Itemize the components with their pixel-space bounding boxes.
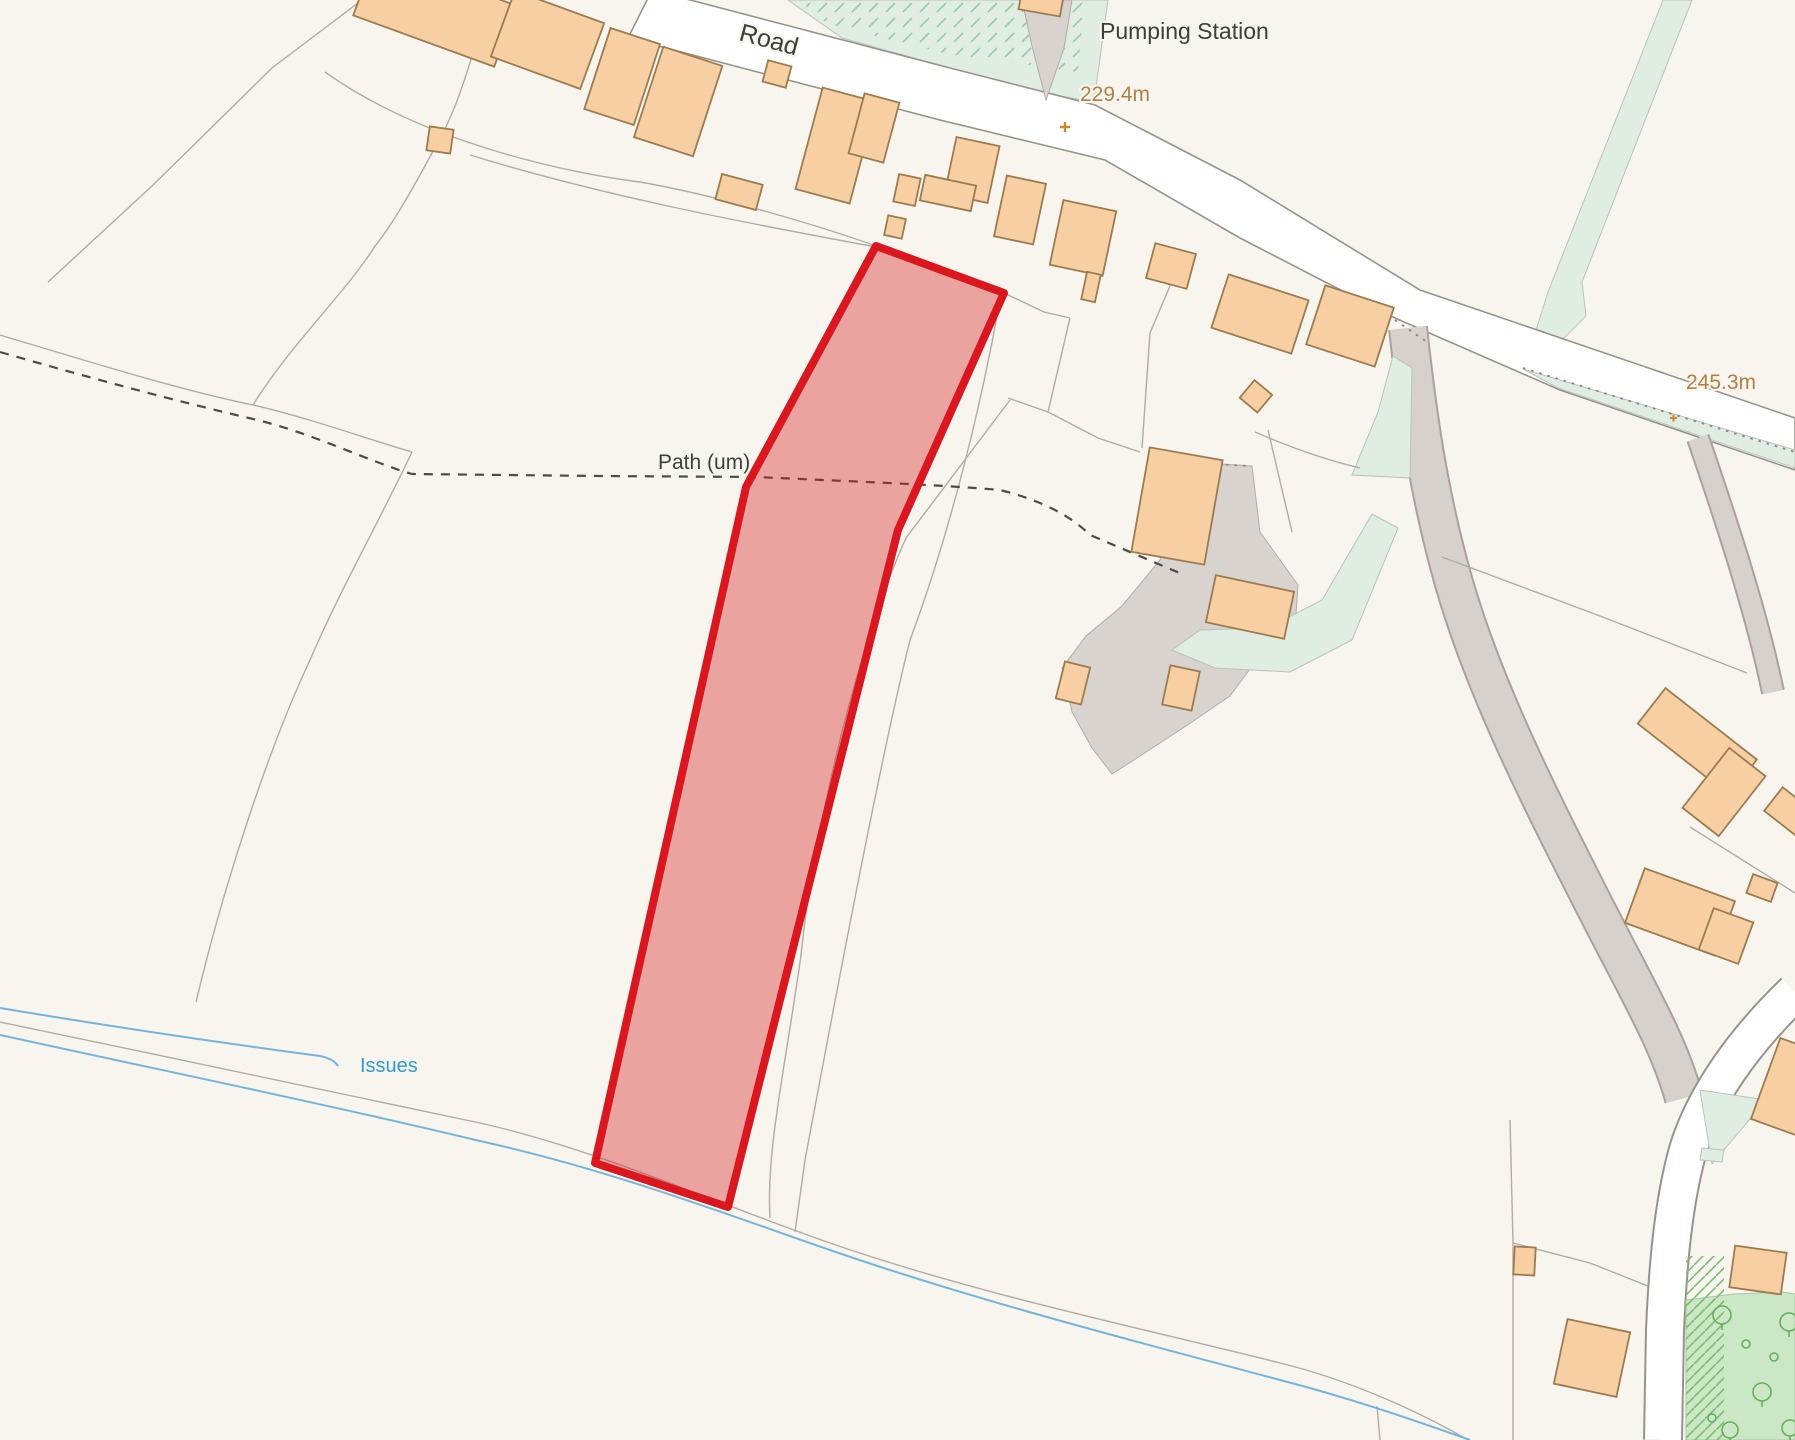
building bbox=[893, 174, 920, 206]
building bbox=[1513, 1246, 1535, 1275]
issues-water-label: Issues bbox=[360, 1055, 418, 1077]
building bbox=[1554, 1319, 1630, 1397]
spot-height-label-road: 229.4m bbox=[1080, 83, 1150, 106]
building bbox=[426, 126, 453, 153]
green-small-patch bbox=[1700, 1148, 1724, 1162]
woodland-hatch-band bbox=[1686, 1256, 1724, 1440]
building bbox=[1729, 1246, 1786, 1295]
pumping-station-label: Pumping Station bbox=[1100, 18, 1269, 44]
building bbox=[884, 215, 906, 238]
os-map-canvas: Road Pumping Station 229.4m 245.3m Path … bbox=[0, 0, 1795, 1440]
footpath-label: Path (um) bbox=[658, 451, 750, 474]
spot-height-label-east: 245.3m bbox=[1686, 371, 1756, 394]
